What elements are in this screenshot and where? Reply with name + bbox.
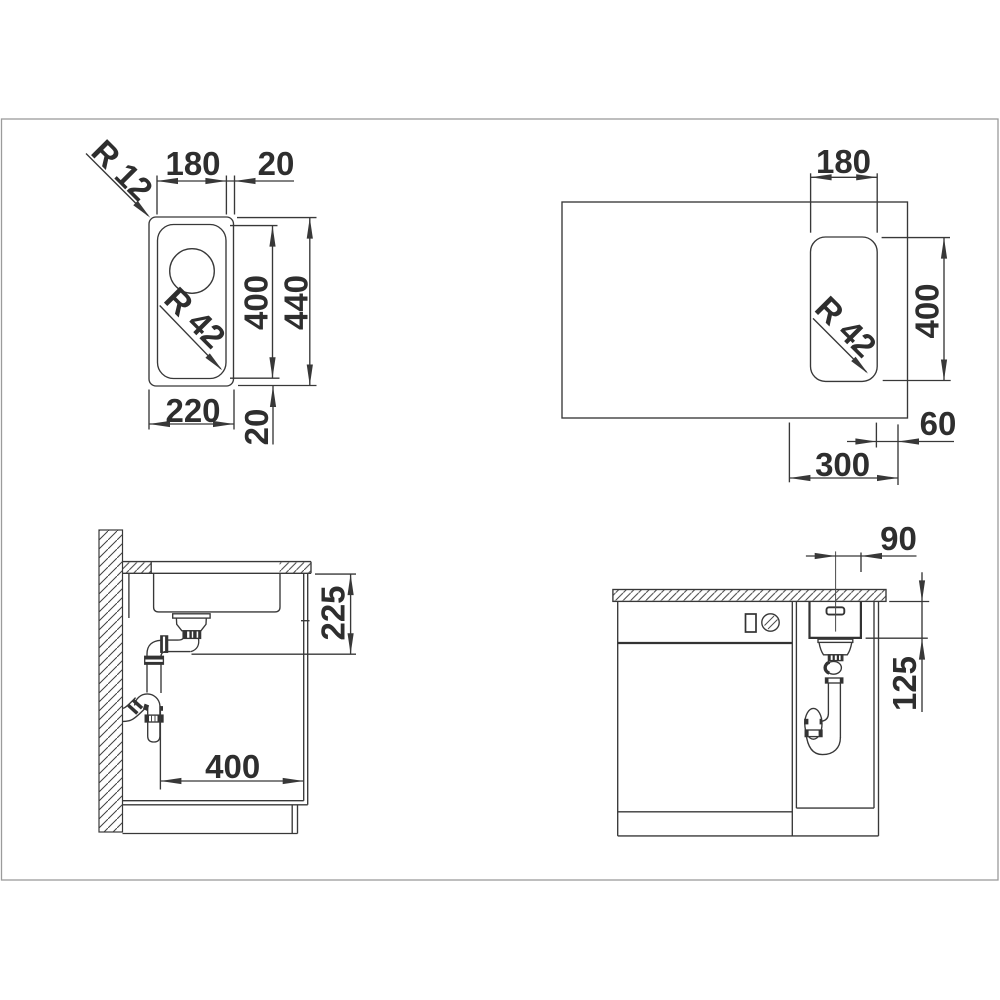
svg-text:225: 225 bbox=[314, 585, 351, 640]
svg-text:400: 400 bbox=[909, 283, 946, 338]
svg-text:60: 60 bbox=[920, 405, 957, 442]
svg-text:440: 440 bbox=[278, 275, 315, 330]
svg-text:180: 180 bbox=[165, 145, 220, 182]
svg-text:180: 180 bbox=[816, 143, 871, 180]
svg-text:20: 20 bbox=[258, 145, 295, 182]
svg-text:220: 220 bbox=[165, 392, 220, 429]
svg-text:400: 400 bbox=[238, 275, 275, 330]
svg-text:400: 400 bbox=[205, 748, 260, 785]
svg-text:125: 125 bbox=[886, 656, 923, 711]
svg-text:90: 90 bbox=[880, 520, 917, 557]
svg-text:300: 300 bbox=[815, 446, 870, 483]
svg-text:20: 20 bbox=[238, 409, 275, 446]
